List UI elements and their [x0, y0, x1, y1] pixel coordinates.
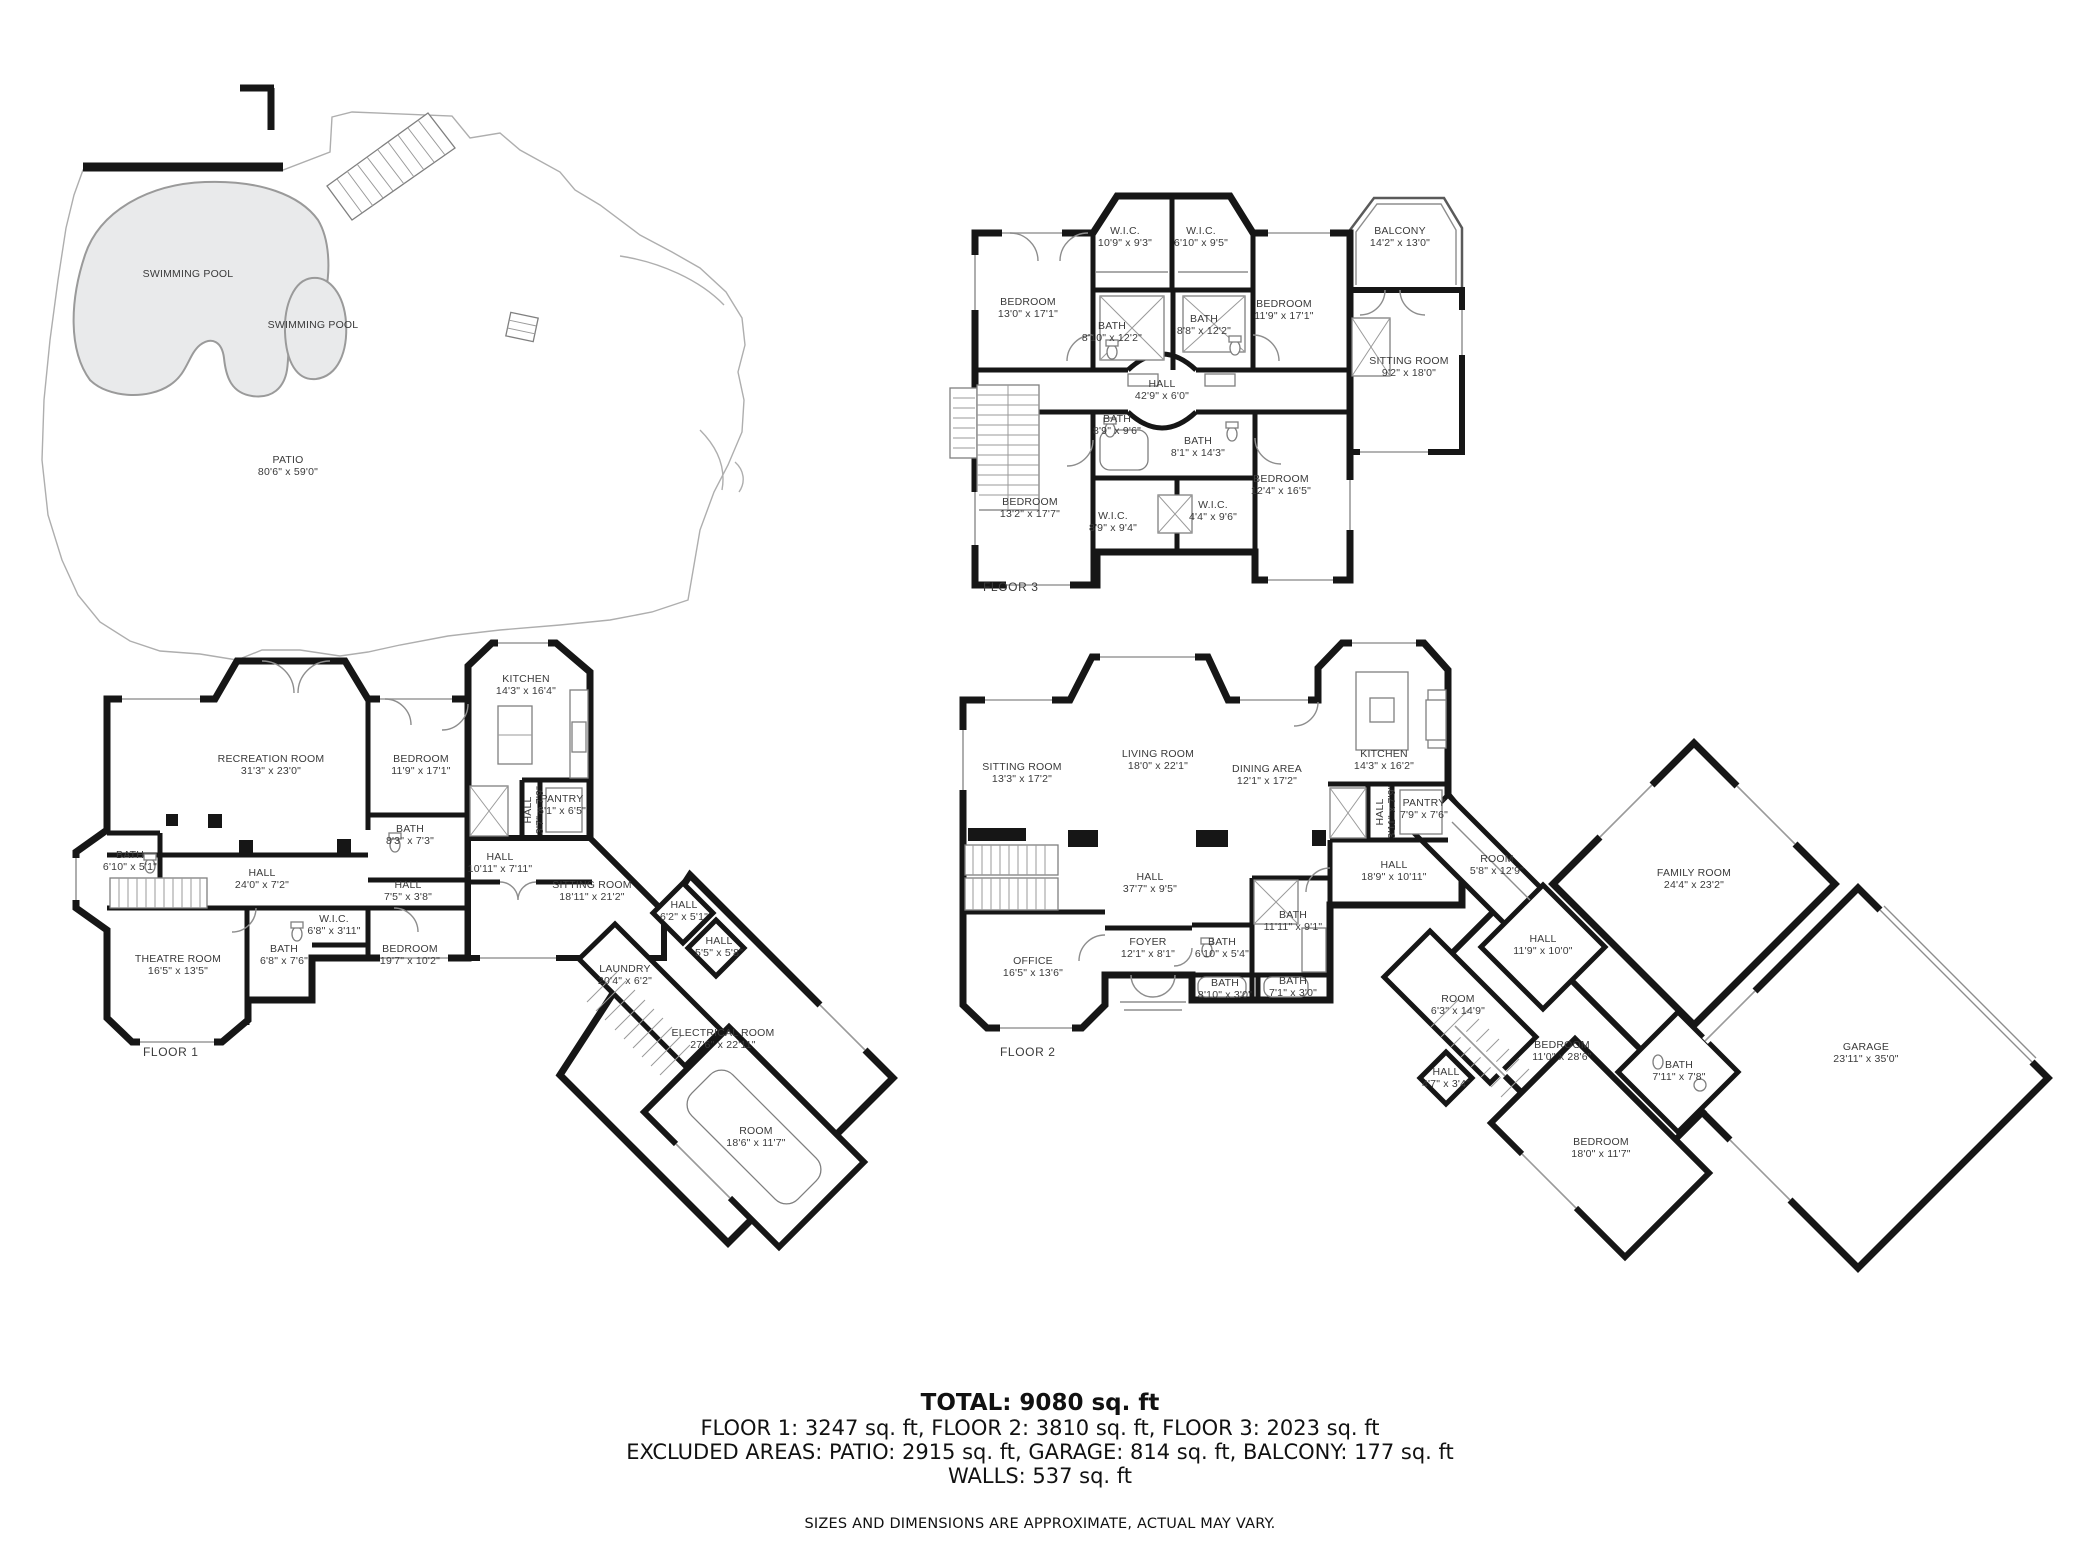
swimming-pool-large — [74, 182, 329, 397]
room-label: BEDROOM19'7" x 10'2" — [380, 943, 440, 967]
floor-caption: FLOOR 1 — [143, 1045, 199, 1059]
stairs-icon — [110, 878, 207, 908]
room-label: FAMILY ROOM24'4" x 23'2" — [1657, 867, 1731, 891]
floor-areas-text: FLOOR 1: 3247 sq. ft, FLOOR 2: 3810 sq. … — [0, 1416, 2080, 1440]
floor-caption: FLOOR 2 — [1000, 1045, 1056, 1059]
room-label: BEDROOM12'4" x 16'5" — [1251, 473, 1311, 497]
excluded-areas-text: EXCLUDED AREAS: PATIO: 2915 sq. ft, GARA… — [0, 1440, 2080, 1464]
room-label: KITCHEN14'3" x 16'4" — [496, 673, 556, 697]
elevator-icon — [470, 786, 508, 836]
vanity-icon — [1205, 374, 1235, 386]
room-label: PANTRY7'9" x 7'6" — [1400, 797, 1448, 821]
floor-1-plan: RECREATION ROOM31'3" x 23'0"BEDROOM11'9"… — [76, 643, 893, 1247]
floorplan-canvas: SWIMMING POOLSWIMMING POOLPATIO80'6" x 5… — [0, 0, 2080, 1560]
floor-3-plan: W.I.C.10'9" x 9'3"W.I.C.6'10" x 9'5"BEDR… — [950, 196, 1462, 594]
room-label: BEDROOM11'9" x 17'1" — [391, 753, 450, 777]
room-label: GARAGE23'11" x 35'0" — [1833, 1041, 1899, 1065]
stairs-icon — [327, 113, 455, 220]
room-label: SITTING ROOM18'11" x 21'2" — [552, 879, 631, 903]
room-label: KITCHEN14'3" x 16'2" — [1354, 748, 1414, 772]
room-label: BALCONY14'2" x 13'0" — [1370, 225, 1430, 249]
room-label: BEDROOM13'0" x 17'1" — [998, 296, 1058, 320]
site-label: SWIMMING POOL — [268, 319, 359, 331]
patio-grate-icon — [506, 312, 538, 341]
total-area-text: TOTAL: 9080 sq. ft — [0, 1390, 2080, 1416]
room-label: LAUNDRY20'4" x 6'2" — [598, 963, 652, 987]
room-label: BEDROOM13'2" x 17'7" — [1000, 496, 1060, 520]
floor-caption: FLOOR 3 — [983, 580, 1039, 594]
elevator-icon — [1330, 788, 1366, 838]
room-label: LIVING ROOM18'0" x 22'1" — [1122, 748, 1194, 772]
floorplan-sheet: SWIMMING POOLSWIMMING POOLPATIO80'6" x 5… — [0, 0, 2080, 1560]
room-label: BEDROOM11'9" x 17'1" — [1254, 298, 1313, 322]
summary-block: TOTAL: 9080 sq. ft FLOOR 1: 3247 sq. ft,… — [0, 1390, 2080, 1532]
floor-2-plan: SITTING ROOM13'3" x 17'2"LIVING ROOM18'0… — [963, 643, 2048, 1268]
stairs-icon — [950, 385, 1039, 510]
site-plan: SWIMMING POOLSWIMMING POOLPATIO80'6" x 5… — [42, 88, 745, 660]
disclaimer-text: SIZES AND DIMENSIONS ARE APPROXIMATE, AC… — [0, 1516, 2080, 1532]
foyer-steps — [1120, 1002, 1186, 1010]
site-label: PATIO80'6" x 59'0" — [258, 454, 318, 478]
room-label: DINING AREA12'1" x 17'2" — [1232, 763, 1302, 787]
stairs-icon — [965, 845, 1058, 910]
walls-area-text: WALLS: 537 sq. ft — [0, 1464, 2080, 1488]
room-label: BEDROOM11'0" x 28'6" — [1532, 1039, 1591, 1063]
patio-wall-corner — [240, 88, 274, 130]
room-label: BEDROOM18'0" x 11'7" — [1571, 1136, 1630, 1160]
room-label: SITTING ROOM13'3" x 17'2" — [982, 761, 1061, 785]
site-label: SWIMMING POOL — [143, 268, 234, 280]
